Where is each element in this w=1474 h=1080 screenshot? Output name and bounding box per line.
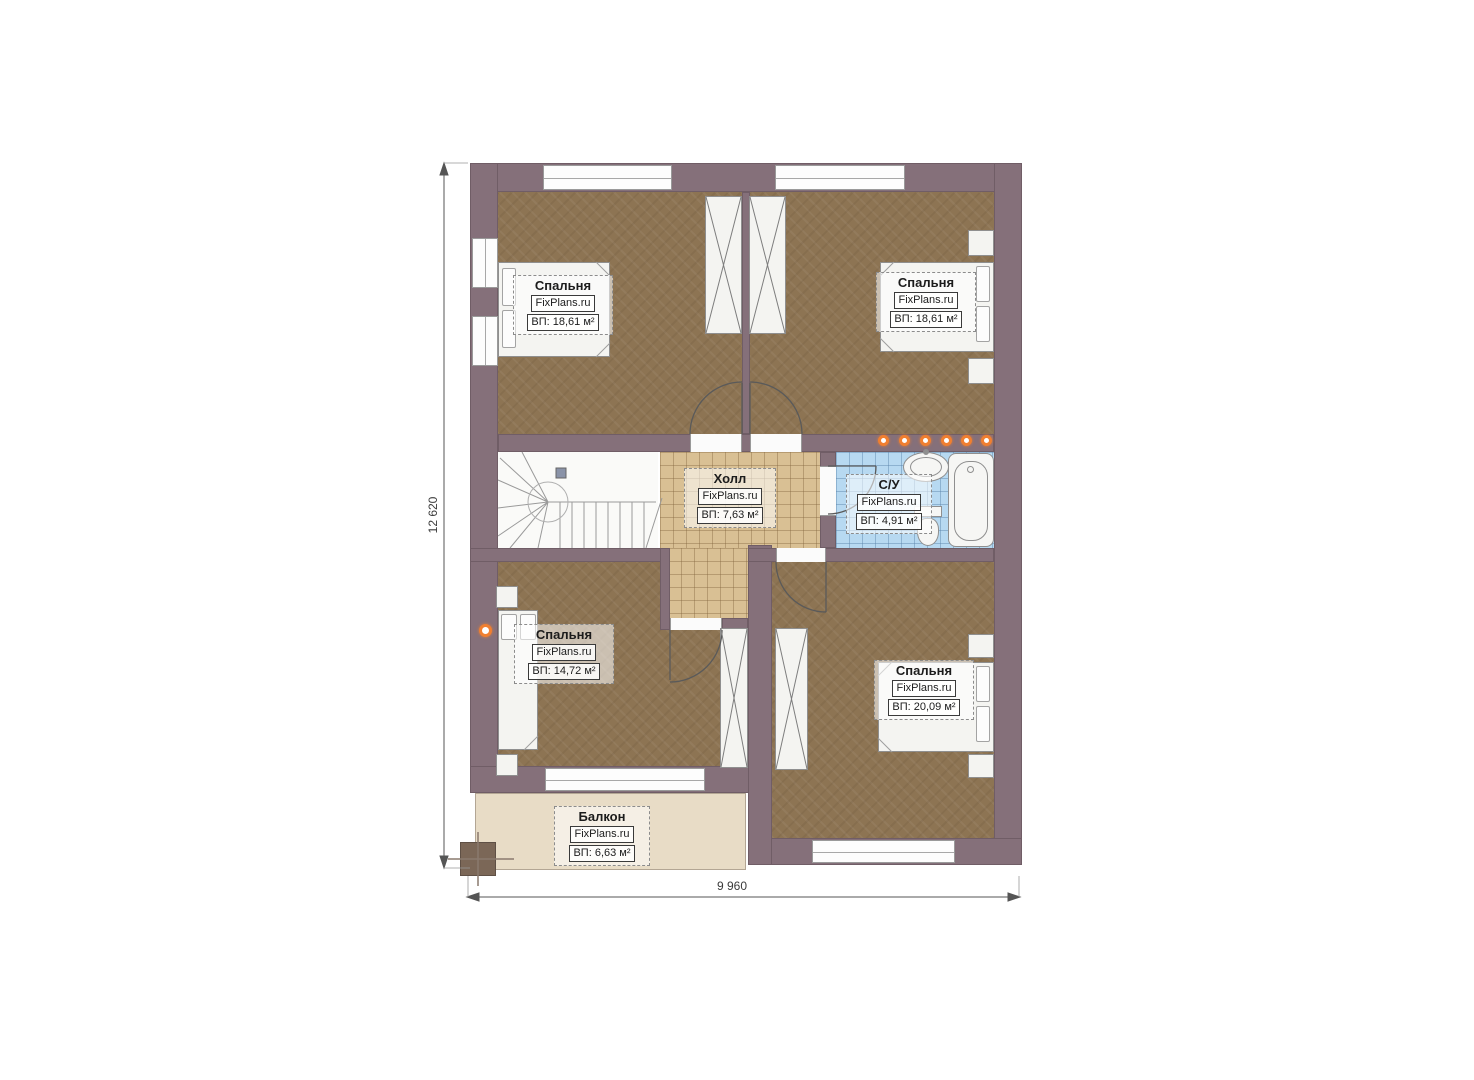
- spotlight-icon: [981, 435, 992, 446]
- brand-label: FixPlans.ru: [857, 494, 920, 511]
- room-area: ВП: 18,61 м²: [890, 311, 961, 328]
- room-label-bedroom-bottom-left: Спальня FixPlans.ru ВП: 14,72 м²: [514, 624, 614, 684]
- room-name: Спальня: [536, 628, 592, 642]
- room-label-hall: Холл FixPlans.ru ВП: 7,63 м²: [684, 468, 776, 528]
- plan-linework: [0, 0, 1474, 1080]
- room-label-bedroom-top-right: Спальня FixPlans.ru ВП: 18,61 м²: [876, 272, 976, 332]
- brand-label: FixPlans.ru: [532, 644, 595, 661]
- room-name: Спальня: [896, 664, 952, 678]
- room-area: ВП: 4,91 м²: [856, 513, 921, 530]
- room-area: ВП: 6,63 м²: [569, 845, 634, 862]
- room-label-bathroom: С/У FixPlans.ru ВП: 4,91 м²: [846, 474, 932, 534]
- dimension-line-vertical: [440, 163, 470, 868]
- brand-label: FixPlans.ru: [894, 292, 957, 309]
- dimension-label-vertical: 12 620: [426, 480, 440, 550]
- floor-plan-canvas: Спальня FixPlans.ru ВП: 18,61 м² Спальня…: [0, 0, 1474, 1080]
- spotlight-icon: [920, 435, 931, 446]
- spotlight-icon: [941, 435, 952, 446]
- room-name: Холл: [714, 472, 747, 486]
- spotlight-icon: [878, 435, 889, 446]
- brand-label: FixPlans.ru: [531, 295, 594, 312]
- wall-lamp-icon: [479, 624, 492, 637]
- room-area: ВП: 14,72 м²: [528, 663, 599, 680]
- spotlight-icon: [899, 435, 910, 446]
- brand-label: FixPlans.ru: [698, 488, 761, 505]
- room-name: С/У: [878, 478, 899, 492]
- staircase-treads: [498, 452, 662, 548]
- room-area: ВП: 7,63 м²: [697, 507, 762, 524]
- room-name: Спальня: [898, 276, 954, 290]
- room-area: ВП: 20,09 м²: [888, 699, 959, 716]
- spotlight-icon: [961, 435, 972, 446]
- room-name: Балкон: [579, 810, 626, 824]
- room-name: Спальня: [535, 279, 591, 293]
- room-label-bedroom-top-left: Спальня FixPlans.ru ВП: 18,61 м²: [513, 275, 613, 335]
- brand-label: FixPlans.ru: [570, 826, 633, 843]
- brand-label: FixPlans.ru: [892, 680, 955, 697]
- room-area: ВП: 18,61 м²: [527, 314, 598, 331]
- room-label-balcony: Балкон FixPlans.ru ВП: 6,63 м²: [554, 806, 650, 866]
- room-label-bedroom-bottom-right: Спальня FixPlans.ru ВП: 20,09 м²: [874, 660, 974, 720]
- dimension-label-horizontal: 9 960: [692, 879, 772, 893]
- balcony-post-cross: [448, 832, 514, 886]
